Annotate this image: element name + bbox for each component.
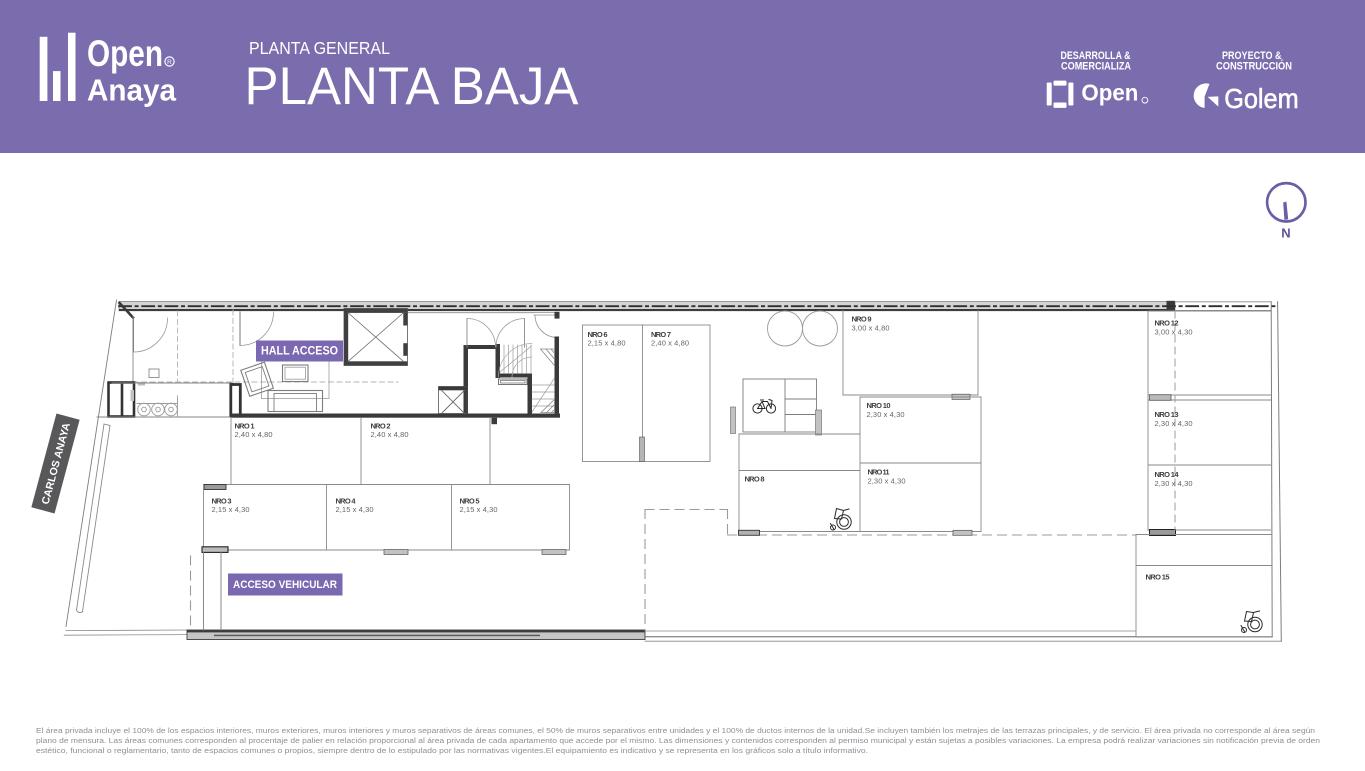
svg-text:3,00 x 4,80: 3,00 x 4,80 [852, 324, 890, 333]
svg-text:NRO 10: NRO 10 [867, 401, 891, 410]
svg-text:NRO 15: NRO 15 [1146, 573, 1170, 582]
svg-text:El área privada incluye el 100: El área privada incluye el 100% de los e… [36, 728, 1315, 735]
svg-text:2,40 x 4,80: 2,40 x 4,80 [235, 430, 273, 439]
svg-text:N: N [1281, 226, 1290, 241]
svg-text:2,15 x 4,30: 2,15 x 4,30 [336, 505, 374, 514]
svg-text:2,15 x 4,80: 2,15 x 4,80 [588, 339, 626, 348]
svg-text:Anaya: Anaya [87, 73, 177, 108]
svg-text:estético, funcional o reglamen: estético, funcional o reglamentario, tan… [36, 748, 868, 755]
svg-text:3,00 x 4,30: 3,00 x 4,30 [1155, 328, 1193, 337]
svg-text:PLANTA GENERAL: PLANTA GENERAL [249, 38, 390, 58]
svg-text:Open: Open [87, 33, 163, 74]
svg-text:2,30 x 4,30: 2,30 x 4,30 [1155, 479, 1193, 488]
svg-text:plano de mensura. Las áreas co: plano de mensura. Las áreas comunes corr… [36, 738, 1320, 745]
svg-text:2,15 x 4,30: 2,15 x 4,30 [212, 505, 250, 514]
svg-text:ACCESO VEHICULAR: ACCESO VEHICULAR [233, 579, 337, 591]
svg-text:NRO 13: NRO 13 [1155, 410, 1179, 419]
svg-text:2,15 x 4,30: 2,15 x 4,30 [460, 505, 498, 514]
svg-text:HALL ACCESO: HALL ACCESO [261, 346, 338, 358]
svg-text:2,40 x 4,80: 2,40 x 4,80 [371, 430, 409, 439]
svg-text:NRO 11: NRO 11 [868, 468, 890, 477]
svg-text:NRO 12: NRO 12 [1155, 319, 1179, 328]
svg-text:Open: Open [1081, 80, 1138, 106]
svg-text:NRO 9: NRO 9 [852, 315, 872, 324]
svg-text:NRO 14: NRO 14 [1155, 470, 1180, 479]
svg-text:R: R [167, 59, 172, 66]
svg-text:PLANTA BAJA: PLANTA BAJA [245, 57, 580, 116]
svg-text:2,30 x 4,30: 2,30 x 4,30 [868, 477, 906, 486]
svg-text:2,40 x 4,80: 2,40 x 4,80 [651, 339, 689, 348]
svg-text:NRO 8: NRO 8 [745, 475, 765, 484]
svg-text:2,30 x 4,30: 2,30 x 4,30 [1155, 419, 1193, 428]
svg-text:Golem: Golem [1224, 83, 1299, 114]
svg-text:2,30 x 4,30: 2,30 x 4,30 [867, 410, 905, 419]
svg-text:COMERCIALIZA: COMERCIALIZA [1061, 60, 1131, 72]
svg-text:CONSTRUCCIÓN: CONSTRUCCIÓN [1216, 59, 1292, 72]
